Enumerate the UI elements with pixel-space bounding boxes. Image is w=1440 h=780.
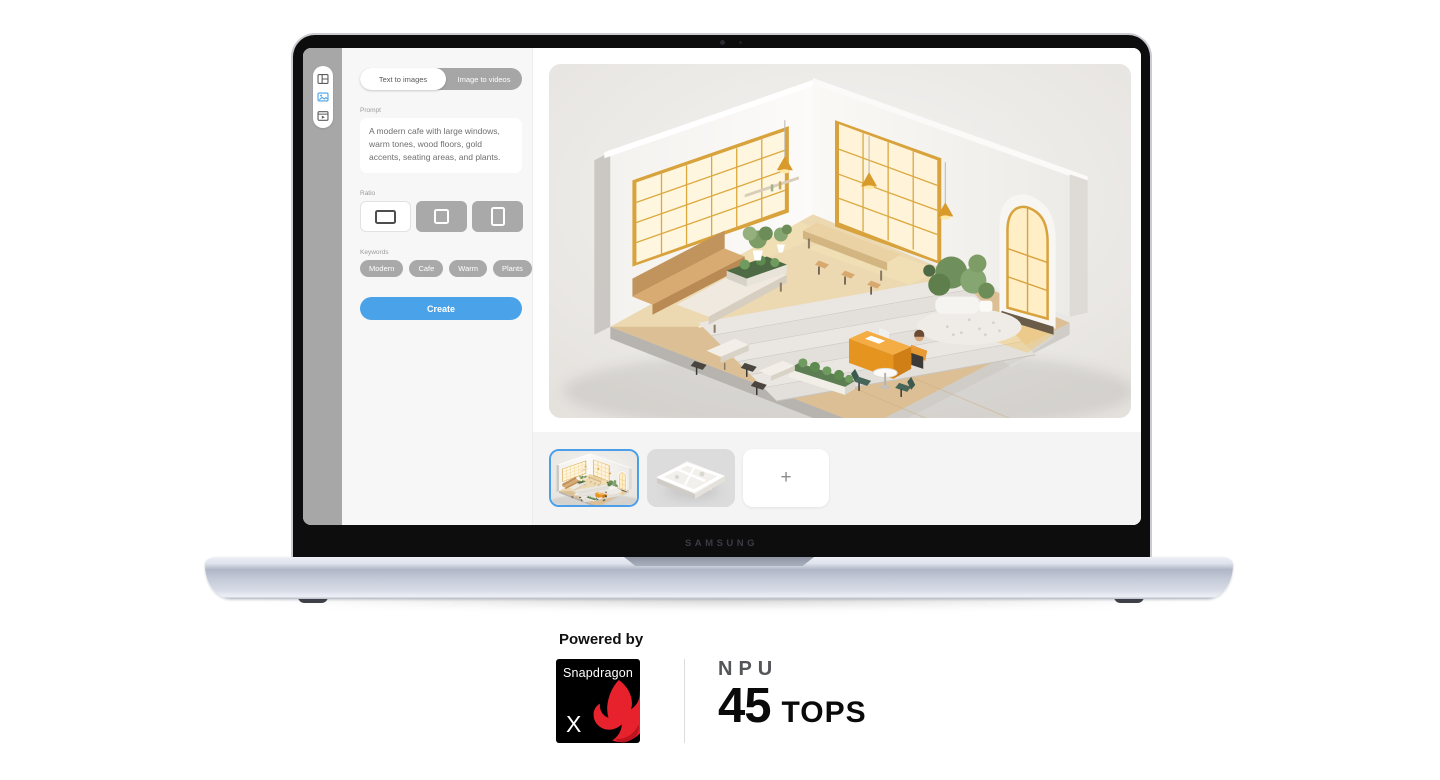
laptop-brand-logo: SAMSUNG: [293, 538, 1150, 549]
page: SAMSUNG: [0, 0, 1440, 780]
ratio-landscape-button[interactable]: [360, 201, 411, 232]
square-shape-icon: [434, 209, 449, 224]
ratio-square-button[interactable]: [416, 201, 467, 232]
keyword-chip-modern[interactable]: Modern: [360, 260, 403, 277]
add-image-button[interactable]: +: [743, 449, 829, 507]
keyword-chip-cafe[interactable]: Cafe: [409, 260, 443, 277]
webcam-icon: [720, 40, 725, 45]
snapdragon-x-label: X: [566, 711, 581, 738]
tab-image-to-videos[interactable]: Image to videos: [446, 68, 522, 90]
npu-label: NPU: [718, 659, 867, 679]
video-icon[interactable]: [317, 110, 329, 122]
thumbnail-floorplan[interactable]: [647, 449, 735, 507]
npu-spec: NPU 45 TOPS: [718, 659, 867, 728]
portrait-shape-icon: [491, 207, 505, 226]
keyword-chips: Modern Cafe Warm Plants: [360, 260, 532, 277]
tops-value: 45: [718, 686, 771, 728]
ratio-options: [360, 201, 532, 232]
image-icon[interactable]: [317, 91, 329, 103]
keyword-chip-plants[interactable]: Plants: [493, 260, 532, 277]
app-sidebar: [303, 48, 342, 525]
snapdragon-label: Snapdragon: [556, 666, 640, 680]
mode-tabs: Text to images Image to videos: [360, 68, 522, 90]
ratio-label: Ratio: [360, 190, 532, 197]
control-panel: Text to images Image to videos Prompt A …: [342, 48, 533, 525]
keyword-chip-warm[interactable]: Warm: [449, 260, 487, 277]
thumbnail-strip: +: [533, 432, 1141, 525]
laptop-lid-notch: [624, 557, 814, 566]
preview-area: +: [533, 48, 1141, 525]
tab-text-to-images[interactable]: Text to images: [360, 68, 446, 90]
snapdragon-flame-icon: [585, 680, 640, 743]
powered-by-label: Powered by: [559, 631, 867, 648]
layout-icon[interactable]: [317, 73, 329, 85]
branding-section: Powered by Snapdragon X NPU 45 TOPS: [556, 631, 867, 743]
vertical-divider: [684, 659, 685, 743]
tops-unit: TOPS: [782, 699, 867, 726]
prompt-label: Prompt: [360, 107, 532, 114]
laptop-base: [205, 557, 1233, 599]
thumbnail-list: +: [549, 449, 829, 507]
ratio-portrait-button[interactable]: [472, 201, 523, 232]
landscape-shape-icon: [375, 210, 396, 224]
mic-dot: [739, 41, 742, 44]
create-button[interactable]: Create: [360, 297, 522, 320]
thumbnail-selected[interactable]: [549, 449, 639, 507]
sidebar-icon-group: [313, 66, 333, 128]
snapdragon-badge: Snapdragon X: [556, 659, 640, 743]
prompt-input[interactable]: A modern cafe with large windows, warm t…: [360, 118, 522, 173]
generated-image: [549, 64, 1131, 418]
laptop-screen: Text to images Image to videos Prompt A …: [303, 48, 1141, 525]
keywords-label: Keywords: [360, 249, 532, 256]
